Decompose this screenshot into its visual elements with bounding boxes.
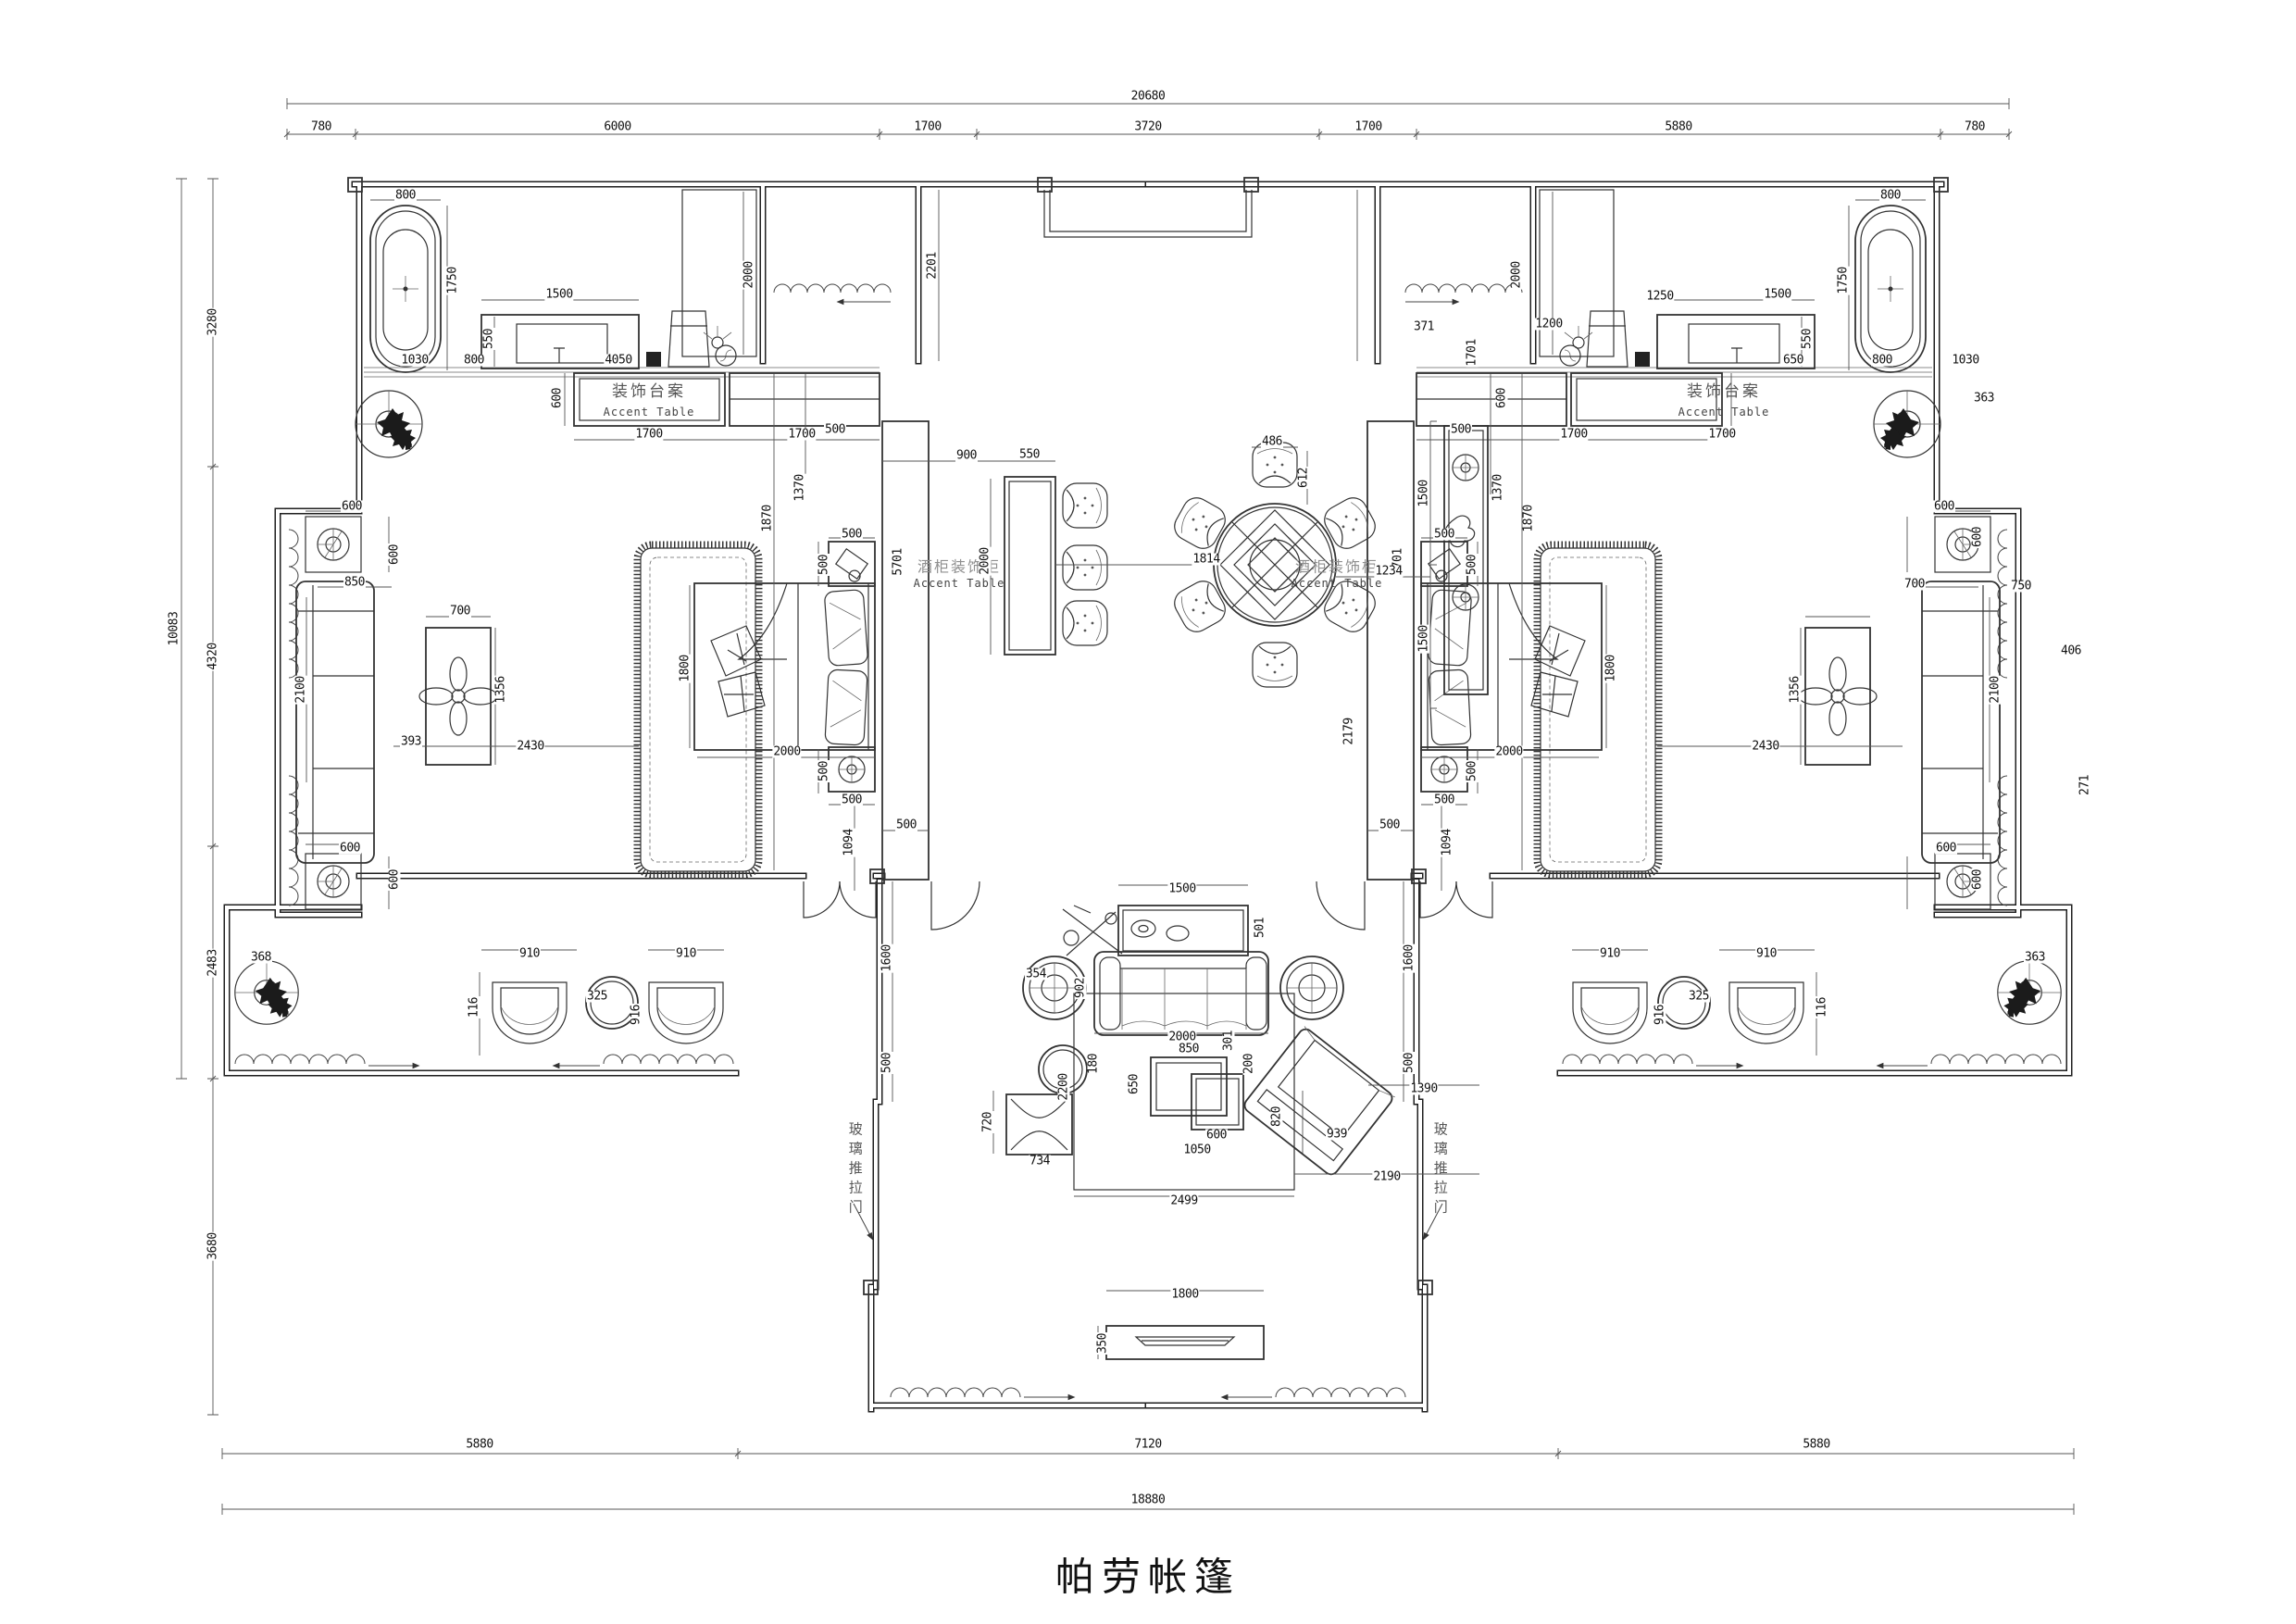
dim-label: 3720 [1133,121,1162,133]
dim-label: 5880 [465,1439,493,1451]
dim-label: 350 [1097,1332,1109,1355]
dim-label: 1800 [680,654,692,682]
dim-label: 2000 [772,746,801,758]
dim-label: 734 [1029,1156,1051,1168]
dim-label: 3280 [207,307,219,336]
dim-label: 910 [1755,948,1778,960]
dim-label: Accent Table [1291,578,1384,589]
dim-label: 354 [1025,968,1047,981]
dim-label: 800 [463,355,485,367]
room-label: 酒柜装饰柜 [1294,557,1379,575]
dim-label: 10083 [168,611,181,647]
dim-label: 2000 [980,546,992,575]
dim-label: 600 [1972,526,1984,548]
dim-label: 916 [630,1004,643,1026]
dim-label: 850 [1178,1043,1200,1056]
dim-label: 486 [1261,436,1283,448]
dim-label: 910 [1599,948,1621,960]
dim-label: 600 [1496,387,1508,409]
dim-label: 600 [1972,868,1984,891]
dim-label: 1234 [1374,566,1403,578]
dim-label: 200 [1243,1053,1255,1075]
dim-label: 2430 [516,741,544,753]
dim-label: 900 [955,450,978,462]
dim-label: 2200 [1058,1072,1070,1101]
dim-label: 2430 [1751,741,1779,753]
dim-label: Accent Table [1678,406,1771,418]
dim-label: 1250 [1645,291,1674,303]
dim-label: 363 [2024,952,2046,964]
dim-label: 1200 [1534,319,1563,331]
dim-label: 650 [1129,1073,1141,1095]
dim-label: 612 [1298,467,1310,489]
dim-label: 1750 [447,266,459,294]
dim-label: 910 [518,948,541,960]
dim-label: 2201 [927,251,939,280]
dim-label: 5701 [892,547,905,576]
dim-label: 820 [1271,1106,1283,1128]
dim-label: 550 [483,328,495,350]
dim-label: 550 [1018,449,1041,461]
dim-label: 3680 [207,1231,219,1260]
dim-label: 500 [824,424,846,436]
dim-label: 916 [1654,1004,1666,1026]
dim-label: 780 [1964,121,1986,133]
dim-label: 1500 [1418,479,1430,507]
dim-label: 180 [1088,1053,1100,1075]
dim-label: 939 [1326,1129,1348,1141]
dim-label: 500 [818,554,830,576]
dim-label: 1700 [1354,121,1382,133]
dimension-labels-layer: 2068078060001700372017005880780328010083… [0,0,2296,1624]
dim-label: 393 [400,736,422,748]
dim-label: 1370 [1492,473,1504,502]
dim-label: 2483 [207,948,219,977]
room-label: 玻璃推拉门 [1432,1120,1449,1218]
dim-label: 600 [1205,1130,1228,1142]
dim-label: Accent Table [913,578,1006,589]
dim-label: 500 [1379,819,1401,831]
dim-label: 1500 [544,289,573,301]
dim-label: 600 [389,868,401,891]
dim-label: 1750 [1838,266,1850,294]
dim-label: 600 [341,501,363,513]
dim-label: 1800 [1605,654,1617,682]
dim-label: 902 [1075,977,1087,999]
dim-label: 368 [250,952,272,964]
dim-label: 500 [1404,1052,1416,1074]
dim-label: 1356 [1790,675,1802,704]
dim-label: 406 [2060,645,2082,657]
dim-label: 501 [1254,917,1267,939]
dim-label: 1030 [400,355,429,367]
dim-label: 2100 [295,675,307,704]
dim-label: 1870 [1523,504,1535,532]
dim-label: 500 [895,819,917,831]
dim-label: 2000 [743,260,755,289]
room-label: 玻璃推拉门 [847,1120,864,1218]
dim-label: 1030 [1951,355,1979,367]
dim-label: 1500 [1167,883,1196,895]
dim-label: 1094 [1441,828,1454,856]
dim-label: 4050 [604,355,632,367]
dim-label: 2499 [1169,1195,1198,1207]
dim-label: 2190 [1372,1171,1401,1183]
dim-label: 325 [586,991,608,1003]
dim-label: 600 [339,843,361,855]
dim-label: 301 [1223,1030,1235,1052]
dim-label: 780 [310,121,332,133]
dim-label: 1870 [762,504,774,532]
dim-label: 363 [1973,393,1995,405]
dim-label: 720 [982,1111,994,1133]
dim-label: 910 [675,948,697,960]
dim-label: 700 [1903,579,1926,591]
dim-label: 500 [1433,529,1455,541]
dim-label: 1700 [1707,429,1736,441]
dim-label: 600 [1935,843,1957,855]
dim-label: 2100 [1990,675,2002,704]
dim-label: 6000 [603,121,631,133]
dim-label: 1500 [1763,289,1791,301]
dim-label: Accent Table [603,406,696,418]
dim-label: 2000 [1511,260,1523,289]
dim-label: 1356 [495,675,507,704]
dim-label: 600 [389,543,401,566]
dim-label: 850 [343,577,366,589]
room-label: 装饰台案 [1686,382,1762,401]
dim-label: 1814 [1192,554,1220,566]
dim-label: 1701 [1466,338,1479,367]
dim-label: 500 [1450,424,1472,436]
dim-label: 1800 [1170,1289,1199,1301]
dim-label: 500 [841,529,863,541]
dim-label: 1700 [1559,429,1588,441]
dim-label: 2000 [1494,746,1523,758]
dim-label: 1050 [1182,1144,1211,1156]
dim-label: 800 [394,190,417,202]
dim-label: 4320 [207,642,219,670]
drawing-title: 帕劳帐篷 [1055,1546,1241,1603]
dim-label: 800 [1871,355,1893,367]
dim-label: 1600 [1404,943,1416,972]
dim-label: 1500 [1418,624,1430,653]
dim-label: 1390 [1409,1083,1438,1095]
dim-label: 500 [1466,760,1479,782]
dim-label: 1700 [634,429,663,441]
dim-label: 325 [1688,991,1710,1003]
dim-label: 600 [1933,501,1955,513]
dim-label: 500 [818,760,830,782]
dim-label: 750 [2010,581,2032,593]
dim-label: 1700 [913,121,942,133]
room-label: 装饰台案 [611,382,687,401]
floor-plan-sheet: 2068078060001700372017005880780328010083… [0,0,2296,1624]
dim-label: 2179 [1343,717,1355,745]
dim-label: 500 [841,794,863,806]
dim-label: 5880 [1664,121,1692,133]
dim-label: 116 [1816,996,1828,1018]
dim-label: 500 [1466,554,1479,576]
dim-label: 371 [1413,321,1435,333]
dim-label: 500 [1433,794,1455,806]
dim-label: 1094 [843,828,855,856]
dim-label: 700 [449,606,471,618]
dim-label: 20680 [1130,91,1167,103]
dim-label: 600 [552,387,564,409]
dim-label: 800 [1879,190,1902,202]
dim-label: 7120 [1133,1439,1162,1451]
dim-label: 500 [881,1052,893,1074]
dim-label: 116 [468,996,480,1018]
dim-label: 650 [1782,355,1804,367]
dim-label: 1370 [794,473,806,502]
dim-label: 271 [2079,774,2091,796]
dim-label: 1700 [787,429,816,441]
dim-label: 1600 [881,943,893,972]
dim-label: 5880 [1802,1439,1830,1451]
dim-label: 18880 [1130,1494,1167,1506]
dim-label: 550 [1802,328,1814,350]
